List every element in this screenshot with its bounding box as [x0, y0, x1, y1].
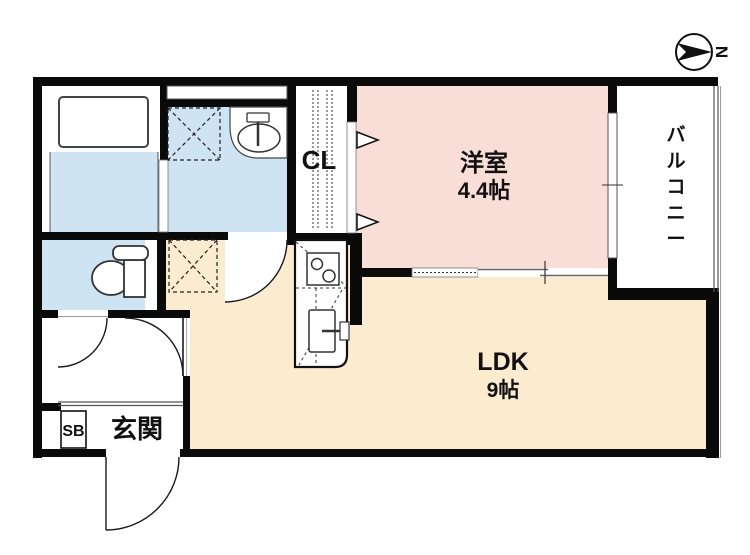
- wall-balcony-top-jamb: [608, 86, 617, 113]
- wall-top: [33, 77, 718, 86]
- wall-washroom-toilet: [33, 232, 228, 240]
- wall-western-ldk: [355, 268, 412, 277]
- partition-pocket: [412, 268, 478, 277]
- toilet-tank: [124, 260, 145, 297]
- bath-door: [159, 160, 168, 232]
- wall-right: [706, 288, 719, 458]
- wall-left: [33, 77, 42, 458]
- wall-balcony-bottom-jamb: [608, 258, 617, 288]
- wall-closet-western-top: [347, 86, 357, 122]
- bathtub: [59, 97, 148, 147]
- wall-washroom-closet: [287, 86, 296, 240]
- room-balcony: [617, 86, 713, 288]
- label-ldk: LDK: [477, 348, 528, 376]
- stove-burner-2: [323, 270, 335, 282]
- closet-door-panel: [347, 122, 356, 233]
- wall-kitchen-western: [350, 233, 362, 325]
- label-balcony-char-5: ー: [666, 229, 685, 250]
- label-shoe-box: SB: [62, 423, 84, 440]
- label-western-size: 4.4帖: [458, 178, 511, 203]
- stove-burner-1: [312, 259, 323, 270]
- toilet-lid: [113, 246, 148, 260]
- label-ldk-size: 9帖: [487, 379, 520, 402]
- wall-entrance-ldk: [183, 376, 190, 451]
- wall-bottom: [180, 449, 719, 457]
- wall-hall-right: [108, 310, 190, 318]
- washroom-window: [167, 86, 287, 99]
- floor-plan-drawing: N 洋室 4.4帖 LDK 9帖 CL 玄関 SB バ ル コ ニ ー: [0, 0, 750, 550]
- label-balcony-vertical: バ ル コ ニ ー: [666, 124, 685, 250]
- wall-washroom-top: [160, 99, 296, 107]
- room-western: [356, 86, 608, 268]
- label-balcony-char-2: ル: [666, 151, 685, 172]
- label-balcony-char-4: ニ: [666, 203, 685, 224]
- wall-bottom-left: [33, 449, 106, 457]
- sink-faucet-handle: [340, 322, 349, 340]
- label-entrance: 玄関: [111, 414, 163, 444]
- compass-north-label: N: [712, 46, 731, 58]
- wall-hall-left: [33, 310, 58, 318]
- wall-balcony-bottom: [608, 288, 719, 300]
- wall-pocket-stub: [42, 403, 61, 411]
- bathroom-wet-floor: [50, 152, 158, 232]
- basin-faucet-handle: [247, 113, 269, 122]
- label-balcony-char-3: コ: [666, 177, 685, 198]
- wall-toilet-ldk: [157, 232, 166, 318]
- label-western-room: 洋室: [460, 149, 508, 177]
- label-closet: CL: [302, 145, 337, 175]
- label-balcony-char-1: バ: [666, 124, 685, 146]
- floor-plan-page: N 洋室 4.4帖 LDK 9帖 CL 玄関 SB バ ル コ ニ ー: [0, 0, 750, 550]
- entrance-pocket: [42, 411, 58, 447]
